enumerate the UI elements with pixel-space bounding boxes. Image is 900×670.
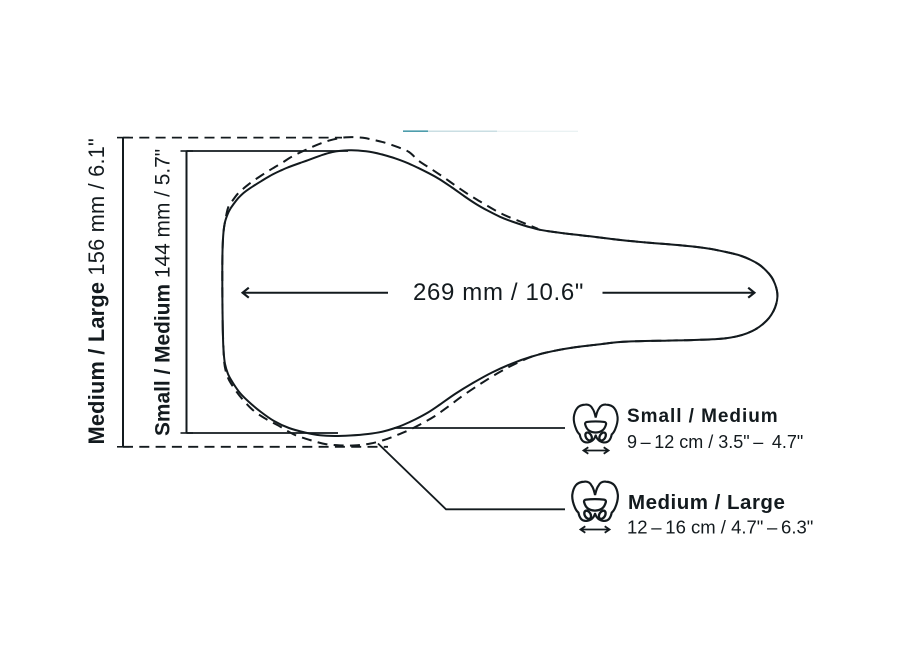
svg-text:269 mm / 10.6": 269 mm / 10.6" <box>413 279 584 306</box>
svg-text:Medium / Large 156 mm / 6.1": Medium / Large 156 mm / 6.1" <box>84 138 109 444</box>
svg-text:Medium / Large: Medium / Large <box>628 491 785 514</box>
svg-text:Small / Medium: Small / Medium <box>627 406 779 427</box>
svg-text:12 – 16 cm / 4.7" – 6.3": 12 – 16 cm / 4.7" – 6.3" <box>627 516 813 537</box>
svg-text:Small / Medium 144 mm / 5.7": Small / Medium 144 mm / 5.7" <box>152 149 175 436</box>
svg-text:9 – 12 cm / 3.5" – 4.7": 9 – 12 cm / 3.5" – 4.7" <box>627 432 803 452</box>
